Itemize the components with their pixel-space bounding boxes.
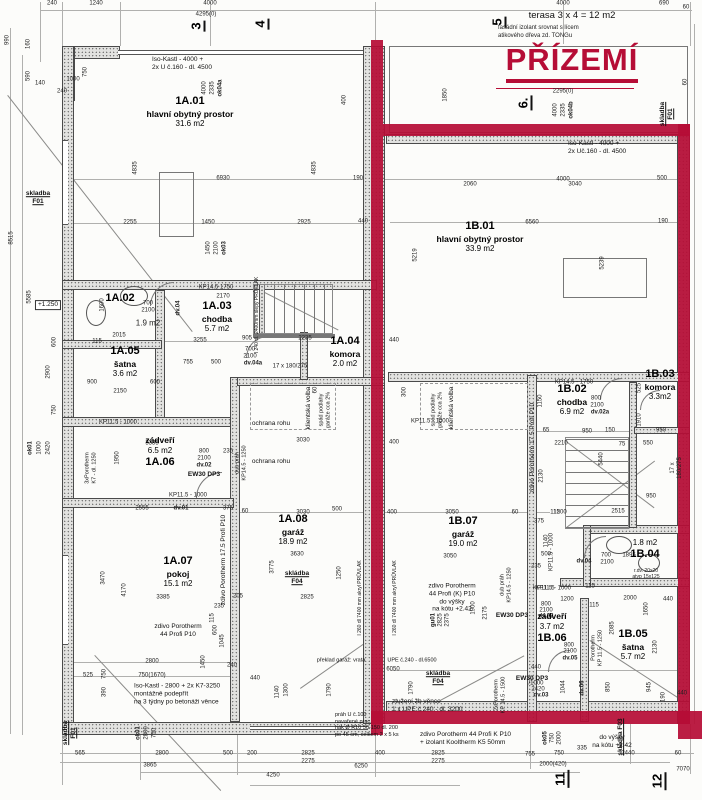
room-label-line: 5.7 m2 <box>618 652 647 662</box>
dimension-text: 1000 <box>37 441 44 454</box>
annotation-text: EW30 DP3 <box>496 612 528 620</box>
dimension-text: 755 <box>183 360 193 367</box>
room-label-line: 1B.04 <box>630 548 659 562</box>
dim-line <box>390 512 550 513</box>
dimension-text: 2175 <box>483 606 490 619</box>
extension-line <box>237 735 238 775</box>
dimension-text: 2000(420) <box>539 762 566 769</box>
annotation-text: EW30 DP3 <box>188 471 220 479</box>
dimension-text: 4250 <box>266 773 279 780</box>
room-label-line: 6.5 m2 <box>145 445 174 455</box>
dimension-text: 2925 <box>297 220 310 227</box>
room-label-line: chodba <box>202 314 232 325</box>
dimension-text: 5219 <box>413 248 420 261</box>
room-label-line: garáž <box>448 529 477 540</box>
extension-line <box>530 724 531 769</box>
wall-segment <box>580 598 589 722</box>
dimension-text: dv.01 <box>174 506 189 513</box>
extension-line <box>690 2 691 46</box>
annotation-text: skládba F04 <box>285 570 309 586</box>
dimension-text: 3255 <box>193 338 206 345</box>
dimension-text: 440 <box>389 338 399 345</box>
room-label: 1A.01hlavní obytný prostor31.6 m2 <box>147 95 234 129</box>
room-label-line: 1A.07 <box>163 555 192 569</box>
annotation-text: skladba F01 <box>26 190 50 206</box>
section-mark: 5 <box>490 16 507 27</box>
dimension-text: 2100 <box>243 354 256 361</box>
room-label-line: hlavní obytný prostor <box>437 234 524 245</box>
dimension-text: 1450 <box>201 220 214 227</box>
annotation-text: klientská volba <box>305 387 313 430</box>
room-label: 1B.03komora3.3m2 <box>645 368 676 402</box>
annotation-text: zdivo Porotherm 17.5 Profi P10 <box>220 515 228 605</box>
unit-b-highlight-top <box>383 124 690 136</box>
dimension-text: 60 <box>242 509 249 516</box>
dimension-text: 1450 <box>206 241 213 254</box>
dimension-text: dv.06 <box>580 681 587 696</box>
room-label-line: hlavní obytný prostor <box>147 109 234 120</box>
dimension-text: KP11.5 - 1000 <box>169 493 207 500</box>
dimension-text: 2275 <box>301 759 314 766</box>
dimension-text: 2210 <box>554 441 567 448</box>
dimension-text: 400 <box>342 95 349 105</box>
dimension-text: 2825 <box>431 751 444 758</box>
room-label-line: pokoj <box>163 569 192 580</box>
dimension-text: 440 <box>250 676 260 683</box>
dimension-text: 3385 <box>156 595 169 602</box>
dimension-text: 17 x 180/275 <box>273 364 308 371</box>
dimension-text: 1910 <box>637 413 644 426</box>
dimension-text: 335 <box>577 746 587 753</box>
dimension-text: 905 <box>242 336 252 343</box>
dimension-text: 1250 <box>337 566 344 579</box>
annotation-text: +1.250 <box>35 300 61 310</box>
dimension-text: 4000 <box>553 103 560 116</box>
dimension-text: 750 <box>550 733 557 743</box>
dimension-text: ok01 <box>28 441 35 455</box>
dim-line <box>10 28 11 734</box>
dimension-text: 2000 <box>623 596 636 603</box>
room-label: 1A.03chodba5.7 m2 <box>202 300 232 334</box>
dimension-text: 2375 <box>445 613 452 626</box>
dimension-text: 240 <box>227 663 237 670</box>
dimension-text: 2100 <box>590 403 603 410</box>
dimension-text: 1850 <box>443 88 450 101</box>
dimension-text: 440 <box>358 219 368 226</box>
dimension-text: 75 <box>619 442 626 449</box>
room-label: 1.8 m21B.04 <box>630 538 659 562</box>
dimension-text: 2100 <box>141 308 154 315</box>
annotation-text: Iso-Kastl - 2800 + 2x K7-3250 montážně p… <box>134 682 220 705</box>
wall-segment <box>230 377 240 722</box>
dimension-text: 1300 <box>284 683 291 696</box>
dimension-text: 2130 <box>653 640 660 653</box>
dimension-text: 900 <box>87 380 97 387</box>
room-label-line: 15.1 m2 <box>163 579 192 589</box>
dimension-text: 5440 <box>599 452 606 465</box>
dimension-text: 6050 <box>386 667 399 674</box>
dimension-text: 4000 <box>202 81 209 94</box>
dimension-text: dv.04 <box>577 559 592 566</box>
dimension-text: 190 <box>661 692 668 702</box>
dimension-text: 160 <box>26 39 33 49</box>
floor-plan-canvas: terasa 3 x 4 = 12 m2 fasádní izolant sro… <box>0 0 702 800</box>
room-label: 1B.07garáž19.0 m2 <box>448 515 477 549</box>
dimension-text: 750 <box>554 751 564 758</box>
room-label-line: zádveří <box>537 611 566 622</box>
dimension-text: dv.04 <box>176 301 183 316</box>
dimension-text: 2900 <box>46 365 53 378</box>
dimension-text: 140 <box>35 81 45 88</box>
dimension-text: 500 <box>657 176 667 183</box>
dimension-text: 2800 <box>144 726 151 739</box>
section-mark: 11 <box>553 770 570 788</box>
dimension-text: 6560 <box>525 220 538 227</box>
dimension-text: ok04b <box>569 101 576 118</box>
section-mark: 6. <box>516 96 533 111</box>
dimension-text: 2335 <box>561 103 568 116</box>
dimension-text: 190 <box>353 176 363 183</box>
furniture-rect <box>159 172 194 237</box>
dimension-text: 5585 <box>27 290 34 303</box>
dimension-text: 2100 <box>600 560 613 567</box>
dimension-text: 1650 <box>644 602 651 615</box>
dimension-text: 375 <box>223 506 233 513</box>
room-label-line: 1A.02 <box>105 292 134 306</box>
dimension-text: KP11.5 - 1000 <box>533 586 571 593</box>
annotation-text: Porotherm KP 11.5 - 1250 <box>590 630 603 666</box>
dimension-text: 4835 <box>133 161 140 174</box>
dimension-text: 400 <box>375 751 385 758</box>
dimension-text: 190 <box>658 219 668 226</box>
dimension-text: 550 <box>643 441 653 448</box>
dimension-text: 3470 <box>101 571 108 584</box>
dimension-text: 4835 <box>312 161 319 174</box>
sink-fixture <box>606 536 632 554</box>
dimension-text: 850 <box>606 682 613 692</box>
room-label: 1A.07pokoj15.1 m2 <box>163 555 192 589</box>
dimension-text: 2000 <box>557 731 564 744</box>
dimension-text: 5239 <box>600 256 607 269</box>
dimension-text: 1150 <box>538 395 545 408</box>
dimension-text: 1950 <box>115 451 122 464</box>
dimension-text: 2275 <box>431 759 444 766</box>
room-label-line: 6.9 m2 <box>557 407 587 417</box>
extension-line <box>140 735 141 780</box>
room-label-line: 5.7 m2 <box>202 324 232 334</box>
title-block: terasa 3 x 4 = 12 m2 fasádní izolant sro… <box>492 10 652 83</box>
dimension-text: 500 <box>223 751 233 758</box>
dimension-text: ok01 <box>136 726 143 740</box>
room-label-line: 1A.01 <box>147 95 234 109</box>
dimension-text: 2825 <box>301 751 314 758</box>
dimension-text: 2255 <box>123 220 136 227</box>
annotation-text: ochrana rohu <box>252 420 290 428</box>
dimension-text: 755 <box>525 752 535 759</box>
dimension-text: 4000 <box>556 1 569 8</box>
dimension-text: 750 <box>152 728 159 738</box>
dimension-text: 2420 <box>46 441 53 454</box>
dimension-text: 115 <box>210 613 217 623</box>
room-label-line: 3.3m2 <box>645 392 676 402</box>
dimension-text: 1044 <box>561 680 568 693</box>
dimension-text: 750(1670) <box>138 673 165 680</box>
dimension-text: 950 <box>656 428 666 435</box>
extension-line <box>375 2 376 40</box>
dimension-text: 235 <box>223 449 233 456</box>
room-label-line: 1B.06 <box>537 631 566 645</box>
dim-line <box>390 222 690 223</box>
dimension-text: ok05 <box>543 731 550 745</box>
dimension-text: 500 <box>211 360 221 367</box>
annotation-text: klientská volba <box>448 387 456 430</box>
dim-line <box>22 55 23 735</box>
room-label: 1B.02chodba6.9 m2 <box>557 383 587 417</box>
extension-line <box>62 2 63 46</box>
room-label-line: 1B.01 <box>437 220 524 234</box>
dimension-text: 1140 <box>275 686 282 699</box>
section-mark: 3 <box>189 20 206 31</box>
annotation-text: do výšky na kótu +2.42 <box>592 734 632 750</box>
dimension-text: 115 <box>589 603 599 610</box>
room-label-line: 1A.06 <box>145 455 174 469</box>
leader-line <box>440 655 524 700</box>
room-label-line: 3.7 m2 <box>537 621 566 631</box>
dimension-text: 750 <box>102 669 109 679</box>
dimension-text: 500 <box>332 507 342 514</box>
dimension-text: 1.9 m2 <box>136 318 160 327</box>
dimension-text: 17 x 180/275 <box>670 456 684 481</box>
dimension-text: 4295(0) <box>196 12 217 19</box>
dimension-text: 8515 <box>9 231 16 244</box>
room-label-line: 1B.07 <box>448 515 477 529</box>
room-label: 1A.02 <box>105 292 134 306</box>
room-label-line: 3.6 m2 <box>110 369 139 379</box>
room-label-line: 33.9 m2 <box>437 244 524 254</box>
annotation-text: skladba F01 <box>62 721 78 745</box>
dimension-text: 205 <box>233 594 243 601</box>
dimension-text: 1790 <box>327 683 334 696</box>
window-band <box>63 555 68 645</box>
dimension-text: 1790 <box>409 681 416 694</box>
annotation-text: Iso-Kastl - 4000 + 2x Uč.160 - dl. 4500 <box>568 140 626 156</box>
dimension-text: 3040 <box>568 182 581 189</box>
dimension-text: 600 <box>52 337 59 347</box>
section-mark: 12 <box>650 772 667 790</box>
dimension-text: 3050 <box>443 554 456 561</box>
room-label-line: 19.0 m2 <box>448 539 477 549</box>
annotation-text: skládba F04 <box>426 670 450 686</box>
annotation-text: dub práh KP14.5 - 1250 <box>499 567 512 602</box>
dimension-text: 600 <box>150 380 160 387</box>
extension-line <box>40 2 41 62</box>
dimension-text: ok03 <box>222 241 229 255</box>
dimension-text: 440 <box>531 665 541 672</box>
dimension-text: 2335 <box>210 81 217 94</box>
room-label: 1A.05šatna3.6 m2 <box>110 345 139 379</box>
wall-segment <box>62 417 240 427</box>
annotation-text: ochrana rohu <box>252 458 290 466</box>
dimension-text: 6930 <box>216 176 229 183</box>
dimension-text: 2060 <box>463 182 476 189</box>
dimension-text: 240 <box>47 1 57 8</box>
dimension-text: dv.02a <box>591 410 609 417</box>
dimension-text: 6250 <box>354 764 367 771</box>
room-label: 1A.08garáž18.9 m2 <box>278 513 307 547</box>
annotation-text: zdivo Porotherm 44 Profi P10 <box>154 623 201 639</box>
wall-segment <box>560 578 690 587</box>
dimension-text: 2150 <box>113 389 126 396</box>
dimension-text: 3775 <box>270 560 277 573</box>
room-label-line: komora <box>645 382 676 393</box>
annotation-text: překlad garáž: vrata <box>317 658 366 665</box>
dimension-text: 2015 <box>112 333 125 340</box>
annotation-text: 2xPorotherm KP 14.5 - 1500 <box>493 677 506 714</box>
annotation-text: dub práh KP14.5 - 1250 <box>234 445 247 480</box>
dimension-text: 2515 <box>611 509 624 516</box>
dimension-text: 4170 <box>122 583 129 596</box>
annotation-text: práh U č.100 navařené prac. hák Ø R10 50… <box>335 712 399 738</box>
dimension-text: 390 <box>102 687 109 697</box>
dimension-text: 2085 <box>610 621 617 634</box>
extension-line <box>210 2 211 46</box>
dimension-text: dv.05 <box>563 656 578 663</box>
dimension-text: 375 <box>534 519 544 526</box>
room-label-line: 1B.03 <box>645 368 676 382</box>
annotation-text: skladba F01 <box>659 97 675 132</box>
dimension-text: 525 <box>83 673 93 680</box>
dimension-text: 1200 <box>560 597 573 604</box>
room-label-line: 1A.04 <box>330 335 361 349</box>
dim-line <box>250 785 460 786</box>
dimension-text: 440 <box>677 691 687 698</box>
room-label-line: zádveří <box>145 435 174 446</box>
room-label-line: 1A.05 <box>110 345 139 359</box>
dimension-text: 945 <box>647 682 654 692</box>
window-band <box>118 50 376 55</box>
dim-line <box>694 24 695 724</box>
room-label-line: 31.6 m2 <box>147 119 234 129</box>
room-label-line: 1.8 m2 <box>630 538 659 548</box>
dimension-text: 700 <box>143 301 153 308</box>
dimension-text: 700 <box>601 553 611 560</box>
dimension-text: 750 <box>83 67 90 77</box>
dimension-text: 3630 <box>290 552 303 559</box>
dimension-text: dv.03 <box>534 693 549 700</box>
dimension-text: 60 <box>675 751 682 758</box>
annotation-text: I 240 dl. 2400mm slepý PRŮVLAK <box>254 277 260 353</box>
dimension-text: 2825 <box>438 613 445 626</box>
dimension-text: 400 <box>387 510 397 517</box>
room-label-line: šatna <box>618 642 647 653</box>
dim-line <box>140 772 580 773</box>
unit-b-highlight-corner <box>678 711 702 739</box>
dimension-text: KP11.5 - 1000 <box>99 420 137 427</box>
dimension-text: gu01 <box>431 613 438 627</box>
dimension-text: dv.04a <box>244 361 262 368</box>
room-label: 1B.05šatna5.7 m2 <box>618 628 647 662</box>
dimension-text: atyp 15x125 <box>632 575 659 581</box>
room-label: 1A.04komora2.0 m2 <box>330 335 361 369</box>
unit-b-highlight-right <box>678 124 690 724</box>
room-label-line: chodba <box>557 397 587 408</box>
dimension-text: 750 <box>52 405 59 415</box>
dimension-text: 300 <box>402 387 409 397</box>
dimension-text: 2555 <box>135 506 148 513</box>
dimension-text: 7070 <box>676 767 689 774</box>
wall-segment <box>155 290 165 420</box>
extension-line <box>120 2 121 46</box>
wall-segment <box>629 382 637 528</box>
room-label-line: garáž <box>278 527 307 538</box>
dimension-text: 2100 <box>563 649 576 656</box>
leader-line <box>300 642 366 689</box>
annotation-text: spád podlahy garáže cca 2% <box>430 392 443 428</box>
room-label-line: 1A.03 <box>202 300 232 314</box>
annotation-text: I 260 dl 7400 mm akryl PRŮVLAK <box>357 560 363 635</box>
dimension-text: 240 <box>57 89 67 96</box>
annotation-text: spád podlahy garáže cca 2% <box>318 392 331 428</box>
dimension-text: 800 <box>199 449 209 456</box>
dimension-text: 2100 <box>197 456 210 463</box>
annotation-text: zdivo Porotherm 44 Profi K P10 + izolant… <box>420 731 511 747</box>
annotation-text: 3xPorotherm K7 - dl. 1250 <box>84 452 97 484</box>
dimension-text: 1000 <box>66 77 79 84</box>
dimension-text: 60 <box>683 79 690 86</box>
annotation-text: UPE č.240 - dl.6500 <box>387 658 436 665</box>
dimension-text: 4000 <box>203 1 216 8</box>
dimension-text: 990 <box>5 35 12 45</box>
staircase-a <box>253 284 333 334</box>
dimension-text: 400 <box>389 440 399 447</box>
room-label-line: 1B.02 <box>557 383 587 397</box>
dimension-text: 2100 <box>214 241 221 254</box>
dimension-text: 2800 <box>155 751 168 758</box>
window-band <box>63 140 68 225</box>
dimension-text: KP11.5 - 1000 <box>549 533 556 571</box>
dimension-text: 1200 <box>553 510 566 517</box>
dimension-text: 1450 <box>201 655 208 668</box>
room-label-line: 1A.08 <box>278 513 307 527</box>
dimension-text: 690 <box>659 1 669 8</box>
dimension-text: 3865 <box>143 763 156 770</box>
dimension-text: 590 <box>26 71 33 81</box>
dimension-text: 600 <box>213 625 220 635</box>
annotation-text: ztužení žb věnce 1 x UPE č.240 - dl. 320… <box>392 698 462 714</box>
room-label: zádveří6.5 m21A.06 <box>145 435 174 469</box>
dimension-text: 1240 <box>89 1 102 8</box>
dimension-text: dv.02 <box>197 463 212 470</box>
floor-title: PŘÍZEMÍ <box>506 42 639 83</box>
dimension-text: 2130 <box>539 469 546 482</box>
annotation-text: zdivo Porotherm 17.5 Profi P10 <box>529 403 537 493</box>
dimension-text: 440 <box>663 597 673 604</box>
room-label-line: šatna <box>110 359 139 370</box>
room-label-line: 1B.05 <box>618 628 647 642</box>
dimension-text: 60 <box>683 5 690 12</box>
dimension-text: 235 <box>531 564 541 571</box>
dimension-text: 1045 <box>220 634 227 647</box>
annotation-text: EW30 DP3 <box>516 675 548 683</box>
section-mark: 4 <box>253 18 270 29</box>
room-label: zádveří3.7 m21B.06 <box>537 611 566 645</box>
annotation-text: zdivo Porotherm 44 Profi (K) P10 do výšk… <box>428 582 475 613</box>
room-label: 1B.01hlavní obytný prostor33.9 m2 <box>437 220 524 254</box>
dimension-text: 2235 <box>298 336 311 343</box>
dimension-text: 950 <box>582 429 592 436</box>
dimension-text: 150 <box>605 428 615 435</box>
room-label-line: komora <box>330 349 361 360</box>
